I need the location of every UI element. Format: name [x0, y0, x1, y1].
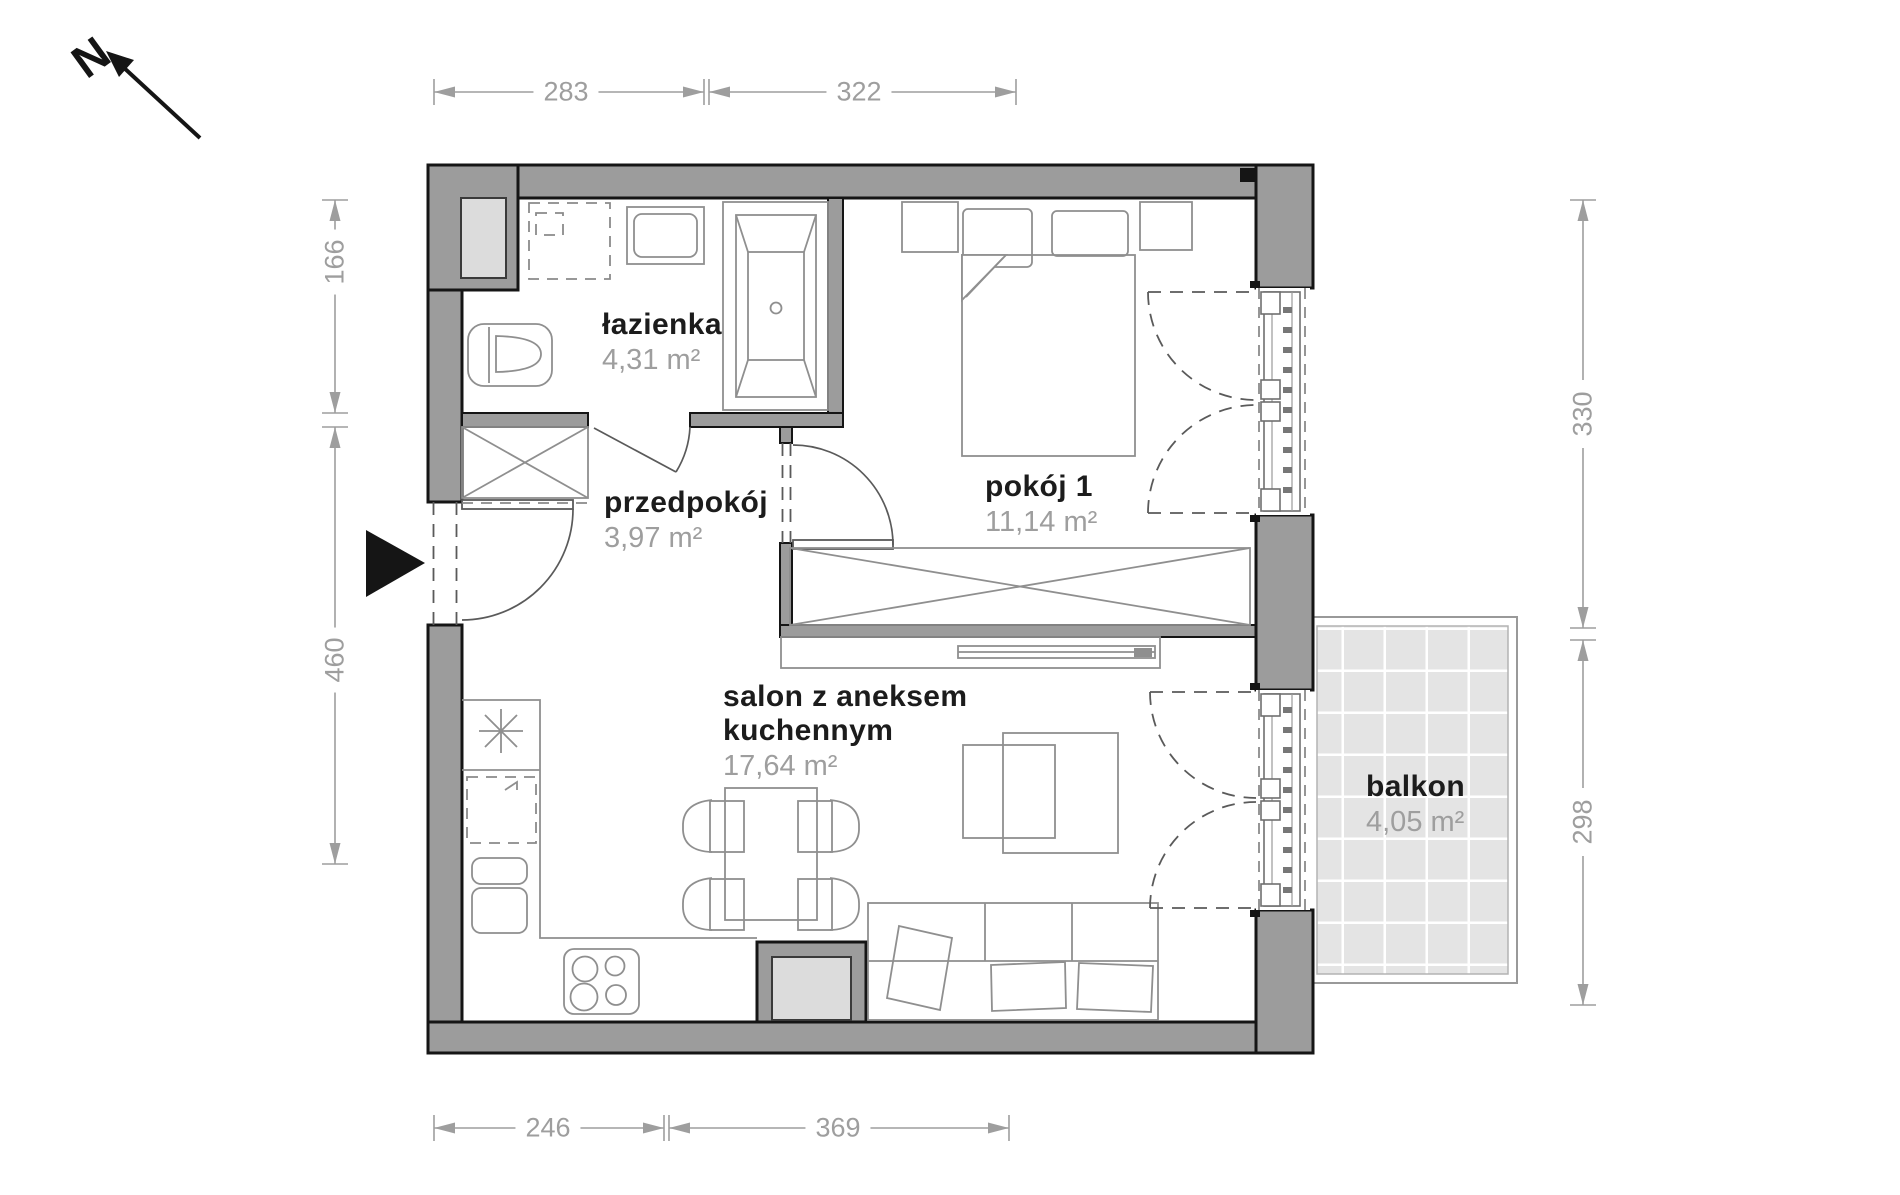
floor-plan: N łazienka 4,31 m² przedpokój 3,97 m² po… [0, 0, 1900, 1195]
fridge [472, 858, 527, 933]
nightstand-left [902, 202, 958, 252]
room-area: 4,31 m² [602, 342, 722, 378]
room-label-salon: salon z aneksem kuchennym 17,64 m² [723, 680, 967, 784]
wall-shaft-bottom [772, 957, 851, 1020]
dim-label-bottom-246: 246 [515, 1113, 580, 1144]
dim-label-left-460: 460 [320, 627, 351, 692]
pokoj1-door [783, 443, 894, 549]
room-name: kuchennym [723, 714, 967, 748]
room-name: przedpokój [604, 486, 768, 520]
dim-label-right-330: 330 [1568, 381, 1599, 446]
chair [683, 878, 744, 930]
dishwasher [467, 777, 536, 843]
window-salon [1150, 683, 1310, 917]
entrance-arrow-icon [366, 530, 425, 597]
wall-shaft-top [461, 198, 506, 278]
room-area: 3,97 m² [604, 520, 768, 556]
dining-table [725, 788, 817, 920]
toilet [468, 324, 552, 386]
chair [798, 800, 859, 852]
nightstand-right [1140, 202, 1192, 250]
room-name: łazienka [602, 308, 722, 342]
dim-label-top-283: 283 [533, 77, 598, 108]
walls [428, 165, 1313, 1053]
dim-label-right-298: 298 [1568, 789, 1599, 854]
room-area: 11,14 m² [985, 504, 1097, 540]
stove [564, 949, 639, 1014]
chair [798, 878, 859, 930]
room-name: pokój 1 [985, 470, 1097, 504]
north-arrow-icon [106, 51, 200, 138]
tv [958, 646, 1155, 658]
washbasin [627, 207, 704, 264]
bed [962, 209, 1135, 456]
room-label-przedpokoj: przedpokój 3,97 m² [604, 486, 768, 556]
room-label-balkon: balkon 4,05 m² [1366, 770, 1465, 840]
room-name: balkon [1366, 770, 1465, 804]
wardrobe-pokoj1 [790, 548, 1250, 625]
room-name: salon z aneksem [723, 680, 967, 714]
room-area: 17,64 m² [723, 748, 967, 784]
dim-label-bottom-369: 369 [805, 1113, 870, 1144]
bathtub [723, 202, 828, 410]
chair [683, 800, 744, 852]
entrance-door [434, 500, 574, 625]
room-area: 4,05 m² [1366, 804, 1465, 840]
room-label-lazienka: łazienka 4,31 m² [602, 308, 722, 378]
wardrobe-hall [462, 427, 588, 503]
sofa [868, 903, 1158, 1020]
dim-label-left-166: 166 [320, 229, 351, 294]
floor-plan-canvas [0, 0, 1900, 1195]
room-label-pokoj1: pokój 1 11,14 m² [985, 470, 1097, 540]
window-pokoj1 [1148, 281, 1310, 522]
coffee-table [963, 733, 1118, 853]
bathroom-door [594, 427, 690, 472]
kitchen-sink-symbol [479, 709, 523, 753]
washing-machine [529, 203, 610, 279]
dim-label-top-322: 322 [826, 77, 891, 108]
